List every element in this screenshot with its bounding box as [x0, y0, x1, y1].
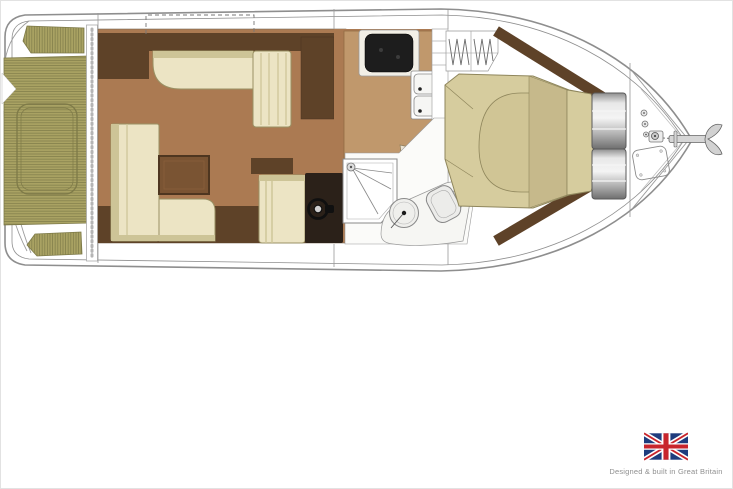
- wardrobe-box: [446, 31, 498, 71]
- saloon-tall-cabinet: [301, 37, 334, 119]
- anchor-flukes: [705, 124, 722, 154]
- anchor-crossbar: [674, 131, 677, 147]
- burner: [396, 55, 400, 59]
- wardrobe: [446, 31, 498, 71]
- windlass-dot: [654, 135, 656, 137]
- brand-block: Designed & built in Great Britain: [598, 432, 733, 476]
- wheel-hub: [314, 205, 322, 213]
- duvet-band: [529, 76, 567, 208]
- sink-drain: [418, 109, 422, 113]
- burner: [379, 48, 383, 52]
- brand-caption: Designed & built in Great Britain: [598, 467, 733, 476]
- helm-side-cabinet: [251, 158, 293, 174]
- helm-console: [305, 173, 343, 243]
- cylinder: [592, 93, 626, 149]
- cooktop: [365, 34, 413, 72]
- settee-back-edge: [153, 51, 253, 58]
- sink-drain: [418, 87, 422, 91]
- boat-floorplan-page: Designed & built in Great Britain: [0, 0, 733, 489]
- shower-head-dot: [350, 166, 352, 168]
- floorplan-drawing: [1, 1, 733, 291]
- saloon-chaise: [253, 51, 291, 127]
- saloon-sofa-corner: [159, 199, 215, 241]
- storage-cylinders: [592, 93, 626, 199]
- saloon-corner-cabinet: [98, 33, 149, 79]
- saloon: [98, 29, 346, 243]
- sofa-bottom-edge: [113, 235, 215, 241]
- saloon-table: [159, 156, 209, 194]
- cockpit-bench-fwd: [23, 26, 84, 53]
- cylinder: [592, 149, 626, 199]
- union-jack-flag: [644, 432, 688, 461]
- cockpit-bench-aft: [27, 232, 82, 256]
- sofa-back-edge: [111, 124, 119, 241]
- floorplan-svg: [1, 1, 733, 291]
